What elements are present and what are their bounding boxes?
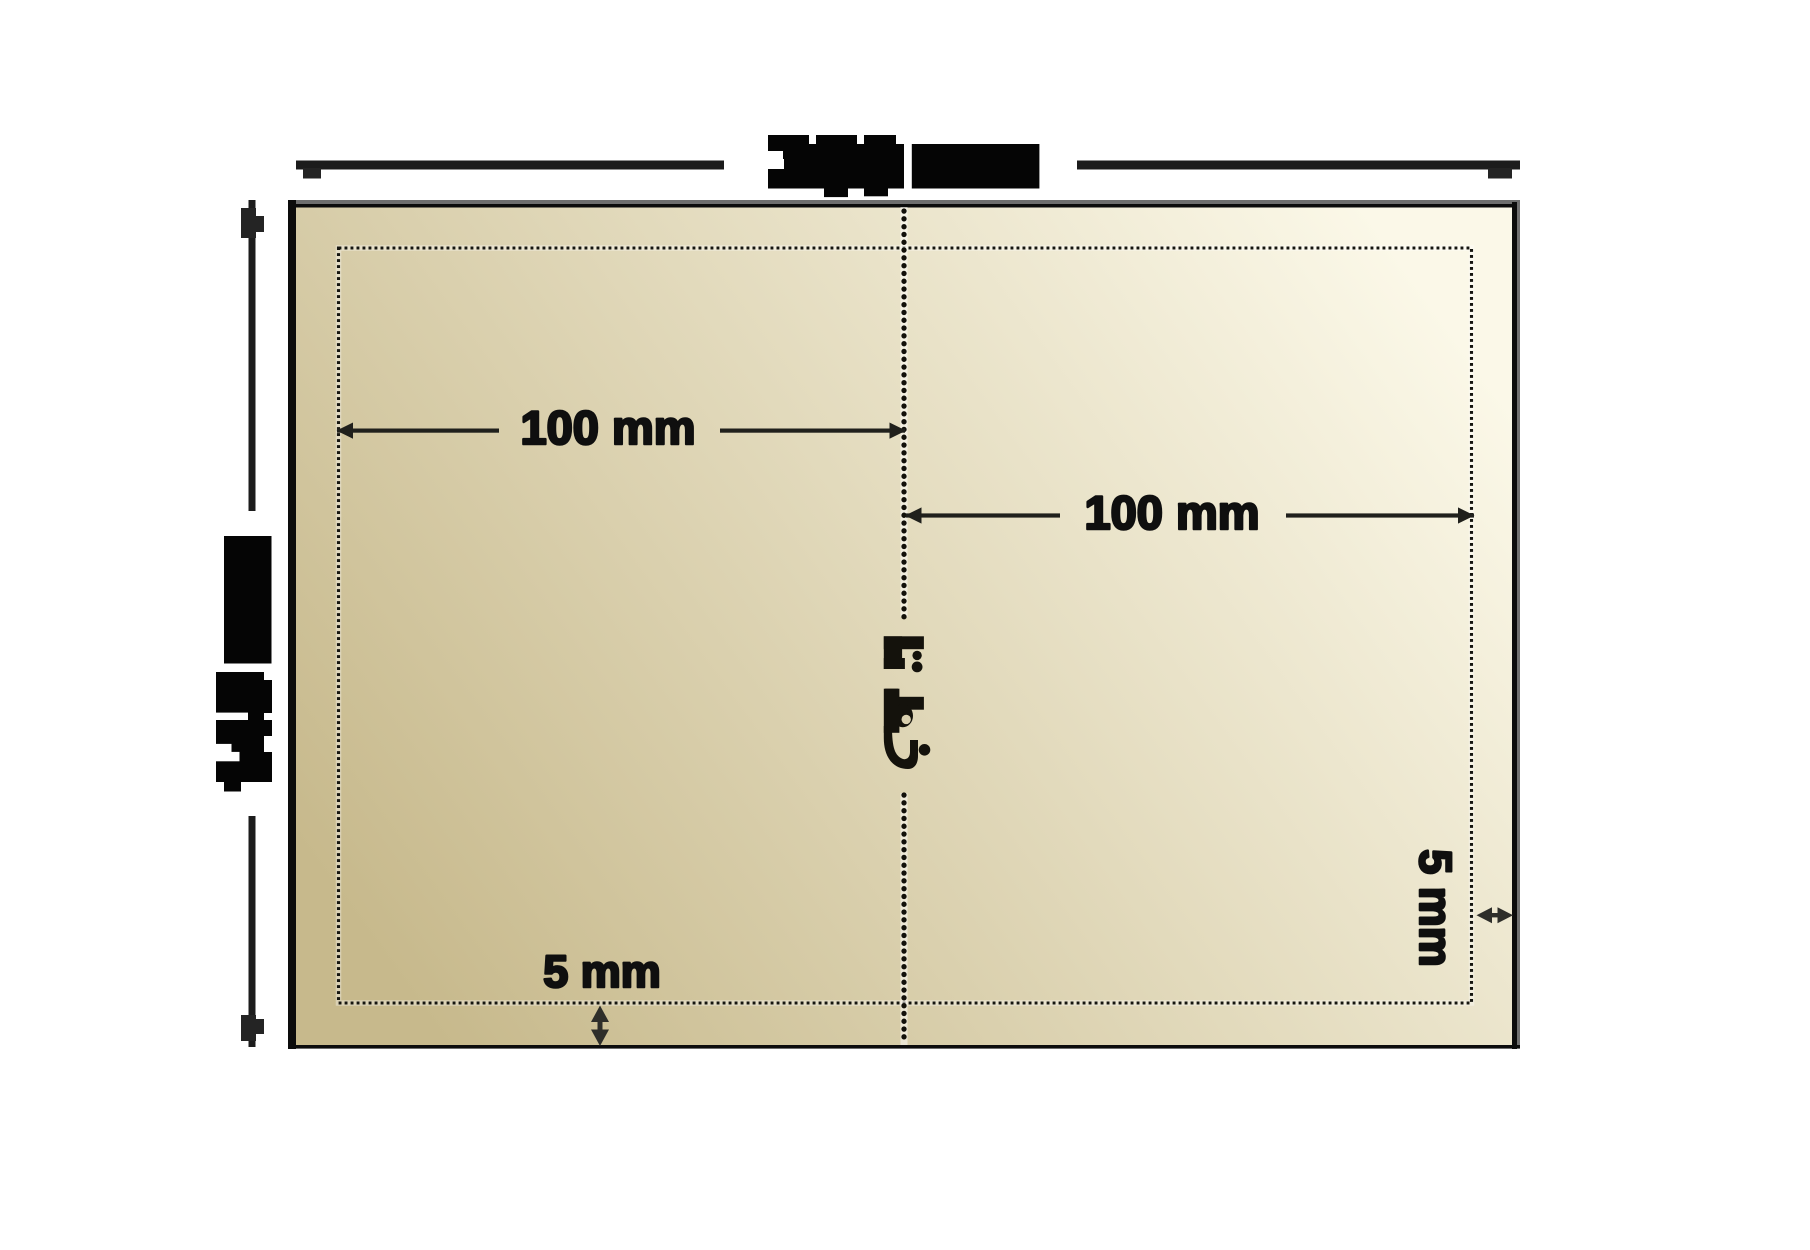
svg-text:5 mm: 5 mm	[1410, 849, 1461, 967]
svg-text:100 mm: 100 mm	[520, 401, 695, 454]
svg-text:100 mm: 100 mm	[1084, 486, 1259, 539]
svg-text:5 mm: 5 mm	[543, 946, 661, 997]
